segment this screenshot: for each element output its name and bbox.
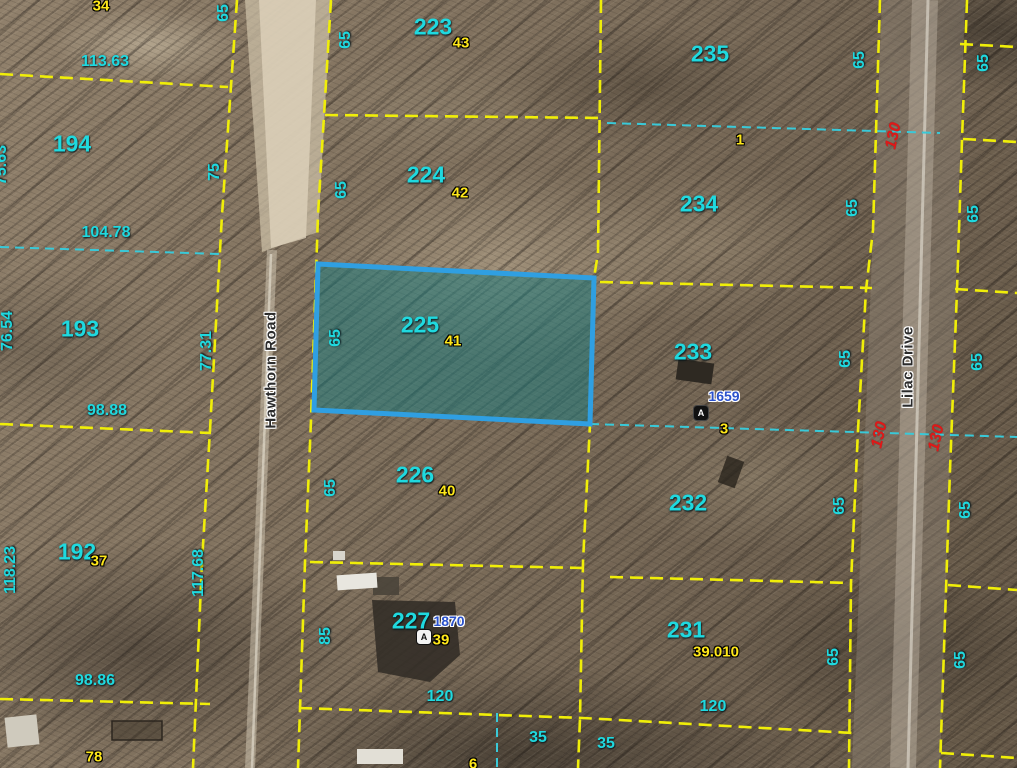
parcel-map-canvas[interactable]: 194 193 192 223 224 225 226 227 235 234 …: [0, 0, 1017, 768]
dimension-65: 65: [852, 51, 868, 69]
dimension-117-68: 117.68: [191, 549, 207, 597]
dimension-118-23: 118.23: [3, 546, 19, 594]
parcel-number-194: 194: [53, 133, 91, 156]
dimension-65: 65: [826, 648, 842, 666]
dimension-65: 65: [832, 497, 848, 515]
dimension-77-31: 77.31: [199, 331, 215, 371]
parcel-number-224: 224: [407, 164, 445, 187]
vehicle: [337, 573, 378, 591]
lot-number-41: 41: [445, 334, 462, 349]
dimension-65: 65: [328, 329, 344, 347]
lot-number-1: 1: [736, 133, 744, 148]
address-marker-a-icon[interactable]: A: [693, 405, 709, 421]
parcel-boundary-line: [955, 289, 1017, 293]
dimension-104-78: 104.78: [82, 225, 131, 241]
parcel-number-225: 225: [401, 314, 439, 337]
address-label-1659: 1659: [708, 389, 739, 403]
dimension-35: 35: [529, 730, 547, 746]
dimension-65: 65: [845, 199, 861, 217]
vehicle: [333, 551, 345, 560]
road-name-lilac: Lilac Drive: [901, 326, 916, 407]
dimension-98-88: 98.88: [87, 403, 127, 419]
lot-number-40: 40: [439, 484, 456, 499]
parcel-boundary-line: [610, 577, 852, 583]
dimension-65: 65: [216, 4, 232, 22]
dimension-65: 65: [334, 181, 350, 199]
lot-number-43: 43: [453, 36, 470, 51]
parcel-boundary-line: [0, 424, 211, 433]
lot-number-42: 42: [452, 186, 469, 201]
lot-number-3: 3: [720, 422, 728, 437]
parcel-number-223: 223: [414, 16, 452, 39]
parcel-boundary-line: [0, 699, 210, 704]
dimension-120: 120: [427, 689, 454, 705]
parcel-number-193: 193: [61, 318, 99, 341]
building: [5, 714, 40, 747]
parcel-number-235: 235: [691, 43, 729, 66]
dimension-65: 65: [838, 350, 854, 368]
dimension-76-54: 76.54: [0, 311, 16, 351]
vehicle: [357, 749, 403, 764]
parcel-number-231: 231: [667, 619, 705, 642]
lot-line: [0, 247, 219, 254]
parcel-number-232: 232: [669, 492, 707, 515]
dimension-65: 65: [958, 501, 974, 519]
parcel-boundary-line: [960, 44, 1017, 47]
dimension-65: 65: [976, 54, 992, 72]
dimension-65: 65: [966, 205, 982, 223]
dimension-85: 85: [318, 627, 334, 645]
dimension-35: 35: [597, 736, 615, 752]
map-vector-overlay: [0, 0, 1017, 768]
parcel-boundary-line: [310, 562, 583, 568]
building: [718, 456, 744, 488]
parcel-boundary-line: [941, 753, 1017, 758]
dimension-98-86: 98.86: [75, 673, 115, 689]
parcel-boundary-line: [193, 0, 237, 768]
lot-number-39-010: 39.010: [693, 645, 739, 660]
lot-number-6: 6: [469, 757, 477, 768]
dimension-65: 65: [953, 651, 969, 669]
building: [112, 721, 162, 740]
lot-number-37: 37: [91, 554, 108, 569]
parcel-boundary-line: [325, 115, 602, 118]
lot-number-39: 39: [433, 633, 450, 648]
dimension-75: 75: [207, 163, 223, 181]
dimension-65: 65: [323, 479, 339, 497]
lot-number-34: 34: [93, 0, 110, 14]
parcel-boundary-line: [600, 282, 872, 288]
parcel-number-226: 226: [396, 464, 434, 487]
dimension-113-63: 113.63: [81, 54, 129, 70]
dimension-65: 65: [338, 31, 354, 49]
parcel-boundary-line: [948, 585, 1017, 590]
address-label-1870: 1870: [433, 614, 464, 628]
parcel-boundary-line: [963, 139, 1017, 142]
parcel-number-234: 234: [680, 193, 718, 216]
address-marker-a-icon[interactable]: A: [416, 629, 432, 645]
dimension-75-63: 75.63: [0, 145, 10, 185]
lot-number-78: 78: [86, 750, 103, 765]
dimension-65: 65: [970, 353, 986, 371]
road-name-hawthorn: Hawthorn Road: [264, 311, 279, 428]
parcel-boundary-line: [0, 74, 228, 87]
dimension-120: 120: [700, 699, 727, 715]
parcel-number-233: 233: [674, 341, 712, 364]
parcel-boundary-line: [299, 708, 853, 733]
